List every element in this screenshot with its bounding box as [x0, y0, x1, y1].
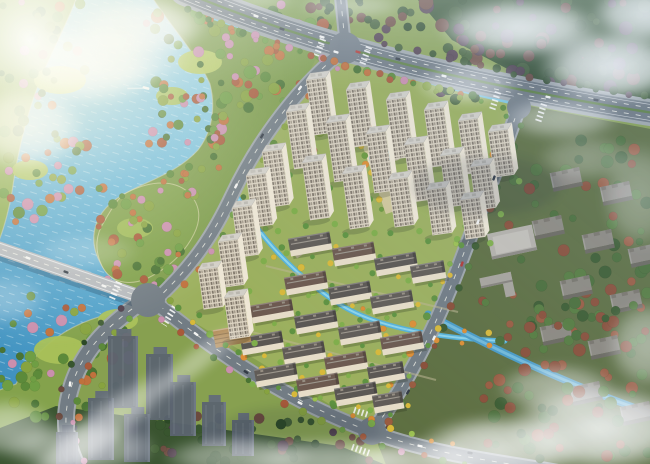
light-grade: [0, 0, 650, 464]
sun-glow-overlay: [0, 0, 650, 464]
aerial-rendering-image: [0, 0, 650, 464]
aerial-rendering-stage: [0, 0, 650, 464]
